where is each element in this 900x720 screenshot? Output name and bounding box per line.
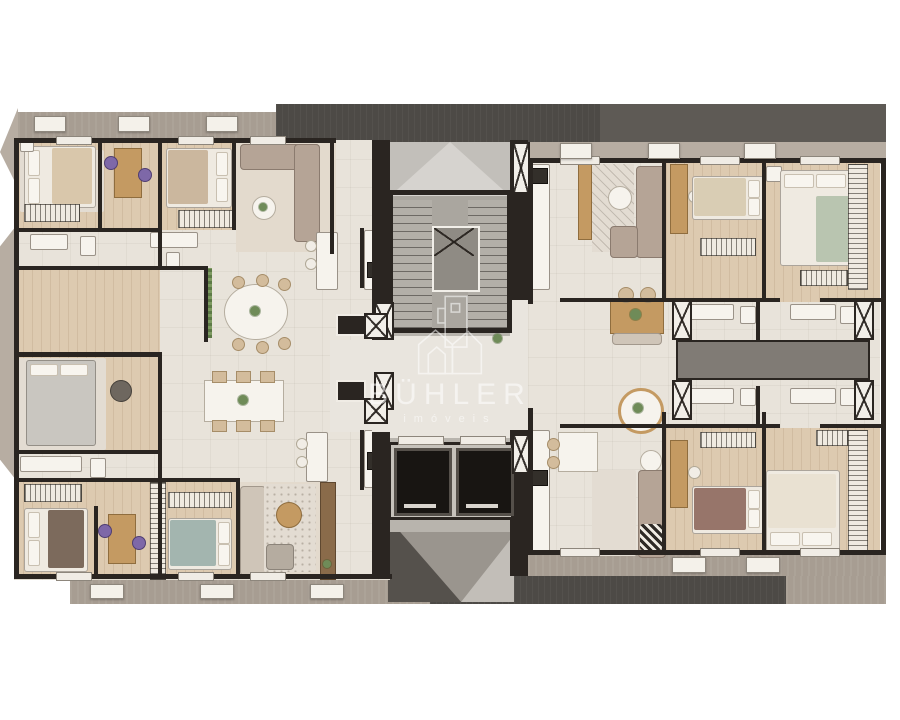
ac-box (90, 584, 124, 599)
floor-plan-render: BÜHLER imóveis (0, 0, 900, 720)
ac-box (206, 116, 238, 132)
ac-box (118, 116, 150, 132)
ac-box (34, 116, 66, 132)
ac-box (310, 584, 344, 599)
ac-box (746, 557, 780, 573)
ac-box (744, 143, 776, 159)
ac-box (560, 143, 592, 159)
ac-box (648, 143, 680, 159)
eave-boxes (0, 0, 900, 720)
ac-box (672, 557, 706, 573)
ac-box (200, 584, 234, 599)
